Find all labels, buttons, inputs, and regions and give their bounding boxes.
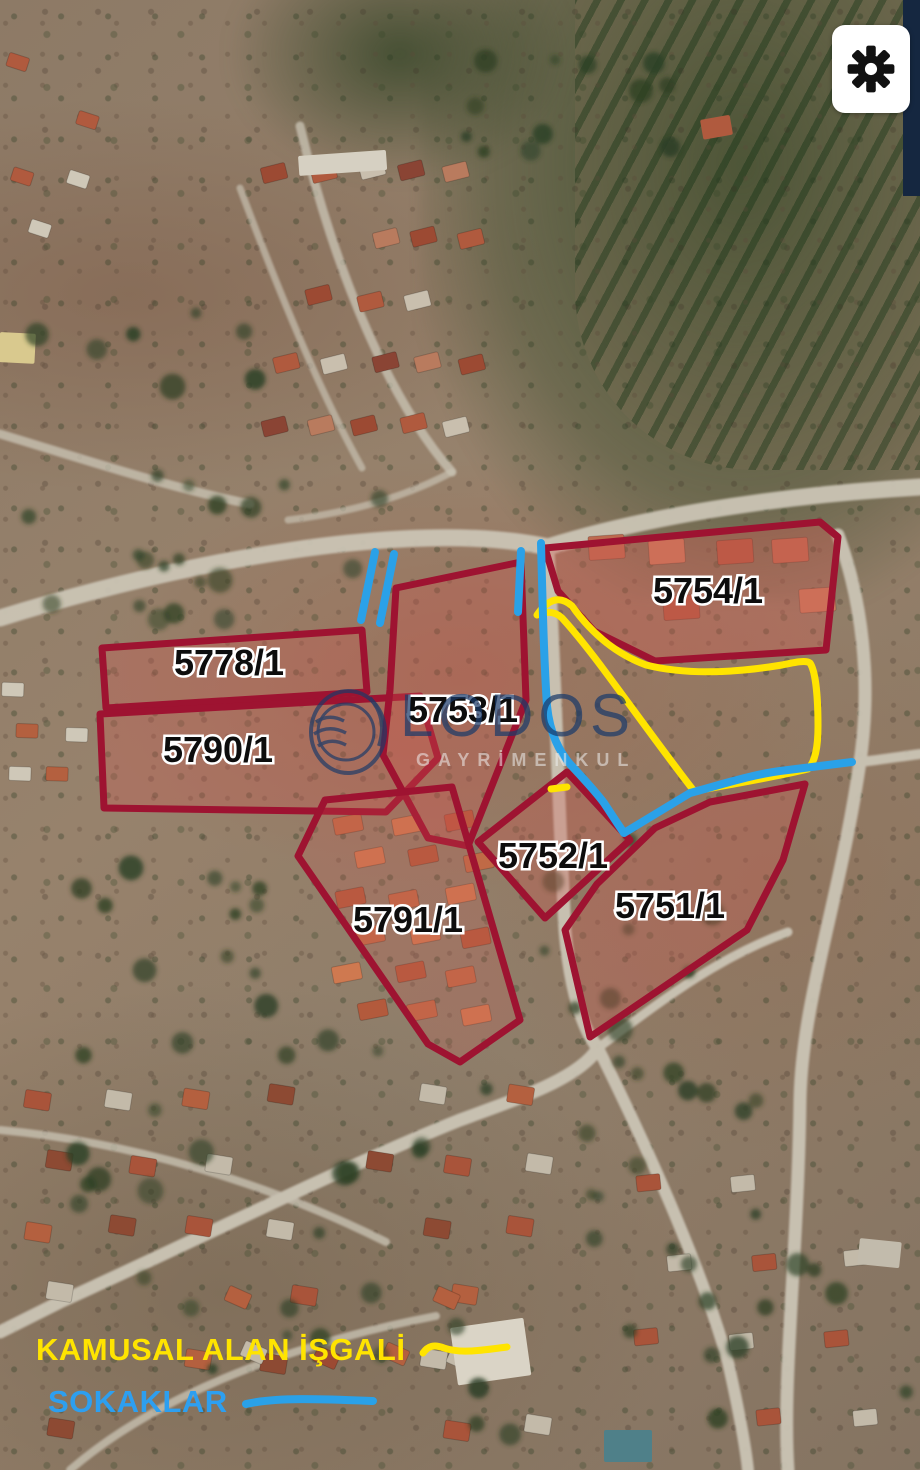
building — [45, 1281, 73, 1303]
tree — [254, 994, 278, 1018]
building — [824, 1330, 850, 1348]
tree — [97, 898, 112, 913]
building — [525, 1153, 553, 1175]
street-line — [361, 552, 375, 620]
tree — [372, 1046, 383, 1057]
building — [443, 1155, 471, 1177]
tree — [148, 608, 170, 630]
tree — [726, 1336, 749, 1359]
building — [75, 110, 99, 130]
tree — [126, 327, 140, 341]
tree — [332, 1161, 357, 1186]
tree — [313, 1227, 325, 1239]
tree — [708, 1408, 728, 1428]
building — [442, 416, 470, 438]
tree — [214, 609, 235, 630]
building — [423, 1217, 451, 1239]
tree — [86, 339, 107, 360]
building — [458, 354, 486, 376]
building — [47, 1417, 75, 1439]
map-viewport[interactable]: 5754/1 5778/1 5790/1 5753/1 5752/1 5751/… — [0, 0, 920, 1470]
tree — [160, 374, 186, 400]
tree — [207, 1364, 217, 1374]
tree — [593, 1191, 604, 1202]
building — [633, 1328, 659, 1346]
building — [331, 962, 363, 984]
building — [372, 227, 400, 249]
building — [506, 1084, 534, 1106]
tree — [900, 1385, 913, 1398]
building — [524, 1414, 552, 1436]
tree — [280, 1299, 298, 1317]
tree — [21, 509, 36, 524]
building — [756, 1408, 782, 1426]
tree — [699, 1292, 717, 1310]
building — [506, 1215, 534, 1237]
tree — [183, 1300, 200, 1317]
tree — [461, 131, 472, 142]
building — [636, 1174, 662, 1192]
building — [10, 167, 34, 187]
tree — [643, 52, 664, 73]
building — [356, 291, 384, 313]
tree — [697, 1083, 716, 1102]
building — [604, 1430, 652, 1462]
building — [260, 162, 288, 184]
building — [16, 723, 38, 738]
tree — [750, 1209, 761, 1220]
tree — [825, 1282, 848, 1305]
tree — [43, 595, 61, 613]
tree — [521, 141, 541, 161]
tree — [659, 77, 675, 93]
building — [23, 1089, 51, 1111]
building — [420, 1348, 448, 1370]
tree — [249, 898, 264, 913]
tree — [550, 55, 560, 65]
building — [700, 115, 733, 140]
tree — [252, 881, 267, 896]
tree — [229, 908, 241, 920]
building — [6, 52, 30, 72]
tree — [207, 871, 222, 886]
building — [304, 284, 332, 306]
tree — [183, 480, 195, 492]
tree — [75, 1047, 92, 1064]
building — [443, 1420, 471, 1442]
tree — [148, 1103, 162, 1117]
building — [66, 169, 90, 189]
tree — [499, 1424, 521, 1446]
tree — [663, 1063, 684, 1084]
building — [2, 682, 24, 697]
tree — [533, 124, 553, 144]
building — [413, 352, 441, 374]
tree — [469, 1416, 485, 1432]
tree — [629, 79, 653, 103]
tree — [478, 146, 490, 158]
tree — [786, 1253, 809, 1276]
tree — [207, 568, 232, 593]
building — [261, 416, 289, 438]
tree — [467, 98, 484, 115]
tree — [757, 1299, 773, 1315]
tree — [240, 497, 261, 518]
tree — [133, 600, 145, 612]
tree — [245, 369, 266, 390]
parcel-label-5751-1: 5751/1 — [615, 885, 725, 926]
tree — [194, 576, 206, 588]
parcel-label-5753-1: 5753/1 — [408, 689, 518, 730]
tree — [613, 1056, 625, 1068]
tree — [70, 1195, 88, 1213]
building — [320, 353, 348, 375]
tree — [586, 1230, 603, 1247]
tree — [279, 479, 290, 490]
building — [24, 1221, 52, 1243]
tree — [704, 1347, 720, 1363]
tree — [474, 49, 497, 72]
tree — [191, 308, 202, 319]
building — [272, 352, 300, 374]
map-overlay: 5754/1 5778/1 5790/1 5753/1 5752/1 5751/… — [0, 0, 920, 1470]
tree — [71, 878, 92, 899]
building — [129, 1155, 157, 1177]
building — [397, 159, 425, 181]
tree — [278, 1046, 296, 1064]
parcel-label-5752-1: 5752/1 — [498, 835, 608, 876]
tree — [282, 1330, 292, 1340]
tree — [66, 1142, 89, 1165]
building — [751, 1253, 777, 1271]
tree — [480, 1083, 493, 1096]
tree — [208, 496, 227, 515]
tree — [189, 1139, 214, 1164]
tree — [250, 968, 261, 979]
tree — [735, 1102, 753, 1120]
parcel-label-5754-1: 5754/1 — [653, 570, 763, 611]
tree — [172, 1032, 194, 1054]
tree — [807, 1263, 821, 1277]
tree — [133, 549, 145, 561]
tree — [361, 1283, 382, 1304]
parcel-label-5791-1: 5791/1 — [353, 899, 463, 940]
building — [857, 1238, 901, 1268]
settings-button[interactable] — [832, 25, 910, 113]
building — [266, 1219, 294, 1241]
building — [267, 1083, 295, 1105]
street-line — [518, 551, 521, 612]
tree — [579, 56, 597, 74]
tree — [80, 1176, 96, 1192]
building — [357, 999, 389, 1021]
tree — [230, 881, 241, 892]
tree — [373, 1346, 389, 1362]
tree — [133, 958, 157, 982]
building — [419, 1083, 447, 1105]
tree — [25, 323, 48, 346]
tree — [681, 1256, 697, 1272]
tree — [158, 561, 169, 572]
tree — [137, 1178, 163, 1204]
building — [442, 161, 470, 183]
tree — [678, 1081, 698, 1101]
building — [307, 415, 335, 437]
tree — [151, 469, 164, 482]
tree — [371, 490, 388, 507]
building — [182, 1088, 210, 1110]
tree — [412, 1142, 428, 1158]
tree — [448, 1318, 465, 1335]
building — [104, 1089, 132, 1111]
building — [9, 766, 31, 781]
tree — [468, 1378, 489, 1399]
tree — [578, 1125, 595, 1142]
parcel-label-5790-1: 5790/1 — [163, 729, 273, 770]
tree — [631, 1067, 644, 1080]
building — [852, 1408, 878, 1426]
parcel-label-5778-1: 5778/1 — [174, 642, 284, 683]
building — [403, 290, 431, 312]
building — [366, 1150, 394, 1172]
tree — [539, 946, 549, 956]
building — [108, 1215, 136, 1237]
tree — [137, 1271, 152, 1286]
building — [28, 219, 52, 239]
tree — [661, 137, 681, 157]
tree — [317, 1029, 339, 1051]
building — [350, 415, 378, 437]
tree — [623, 1324, 637, 1338]
building — [185, 1215, 213, 1237]
tree — [666, 1243, 679, 1256]
tree — [628, 1157, 646, 1175]
tree — [749, 1093, 764, 1108]
tree — [119, 855, 144, 880]
building — [65, 727, 87, 742]
building — [409, 226, 437, 248]
building — [730, 1174, 756, 1192]
tree — [236, 323, 252, 339]
building — [224, 1285, 252, 1309]
tree — [173, 553, 185, 565]
building — [457, 228, 485, 250]
tree — [343, 559, 362, 578]
gear-icon — [845, 43, 897, 95]
tree — [310, 1328, 331, 1349]
tree — [221, 950, 234, 963]
building — [46, 767, 68, 782]
